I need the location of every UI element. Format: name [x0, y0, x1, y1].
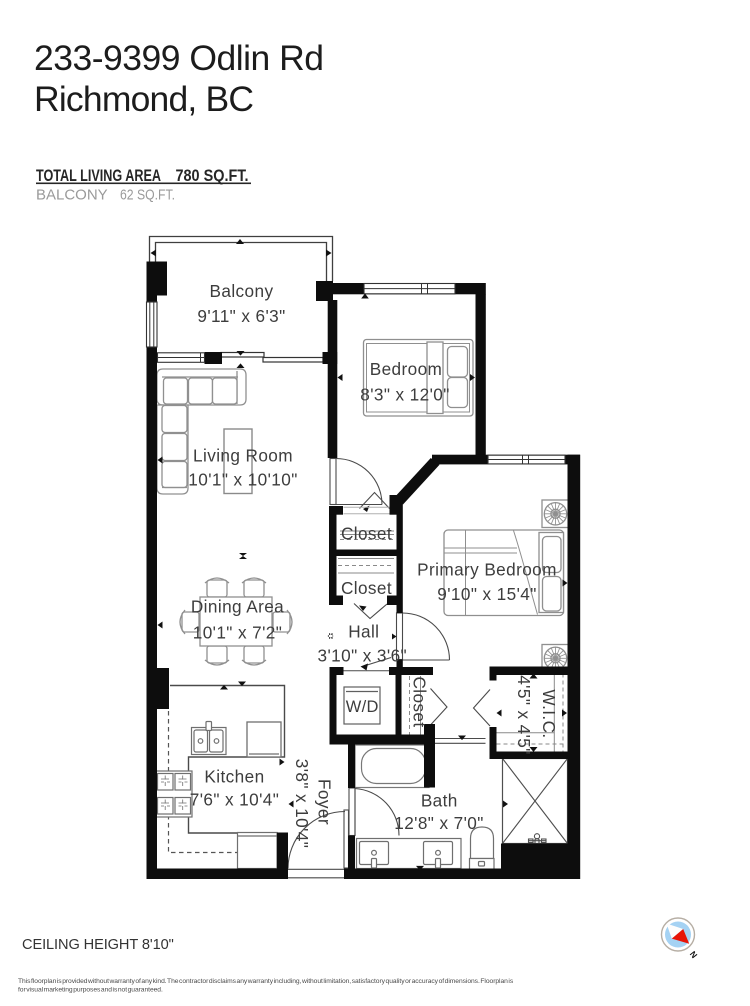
svg-text:12'8" x 7'0": 12'8" x 7'0"	[394, 813, 484, 833]
svg-text:Closet: Closet	[410, 676, 430, 727]
svg-text:10'1" x 10'10": 10'1" x 10'10"	[188, 470, 297, 490]
svg-text:W/D: W/D	[346, 698, 379, 716]
svg-text:9'11" x 6'3": 9'11" x 6'3"	[197, 306, 285, 326]
svg-text:W.I.C.: W.I.C.	[539, 689, 559, 738]
svg-text:This floorplan is provided wit: This floorplan is provided without warra…	[18, 978, 514, 985]
svg-text:Closet: Closet	[341, 524, 392, 544]
svg-text:Bath: Bath	[421, 791, 458, 811]
svg-text:Foyer: Foyer	[315, 779, 335, 825]
svg-text:Balcony: Balcony	[210, 281, 274, 301]
svg-text:BALCONY62 SQ.FT.: BALCONY62 SQ.FT.	[36, 186, 175, 203]
svg-text:8'3" x 12'0": 8'3" x 12'0"	[360, 385, 450, 405]
svg-text:TOTAL LIVING AREA780 SQ.FT.: TOTAL LIVING AREA780 SQ.FT.	[36, 167, 249, 185]
svg-text:4'5" x 4'5": 4'5" x 4'5"	[514, 675, 534, 755]
svg-text:CEILING HEIGHT 8'10": CEILING HEIGHT 8'10"	[22, 937, 174, 953]
svg-text:Richmond, BC: Richmond, BC	[34, 79, 253, 119]
svg-text:10'1" x 7'2": 10'1" x 7'2"	[193, 623, 283, 643]
svg-text:3'10" x 3'6": 3'10" x 3'6"	[318, 646, 408, 666]
svg-text:3'8" x 10'4": 3'8" x 10'4"	[292, 759, 312, 849]
svg-text:for visual marketing purposes: for visual marketing purposes and is not…	[18, 987, 163, 994]
svg-text:Bedroom: Bedroom	[370, 359, 443, 379]
svg-text:Closet: Closet	[341, 578, 392, 598]
svg-text:Primary Bedroom: Primary Bedroom	[417, 560, 557, 580]
svg-text:Kitchen: Kitchen	[204, 767, 264, 787]
svg-text:233-9399 Odlin Rd: 233-9399 Odlin Rd	[34, 38, 324, 78]
svg-text:9'10" x 15'4": 9'10" x 15'4"	[437, 584, 536, 604]
svg-text:Dining Area: Dining Area	[191, 597, 284, 617]
svg-text:7'6" x 10'4": 7'6" x 10'4"	[190, 790, 280, 810]
svg-text:Living Room: Living Room	[193, 446, 293, 466]
svg-text:Hall: Hall	[348, 622, 379, 642]
